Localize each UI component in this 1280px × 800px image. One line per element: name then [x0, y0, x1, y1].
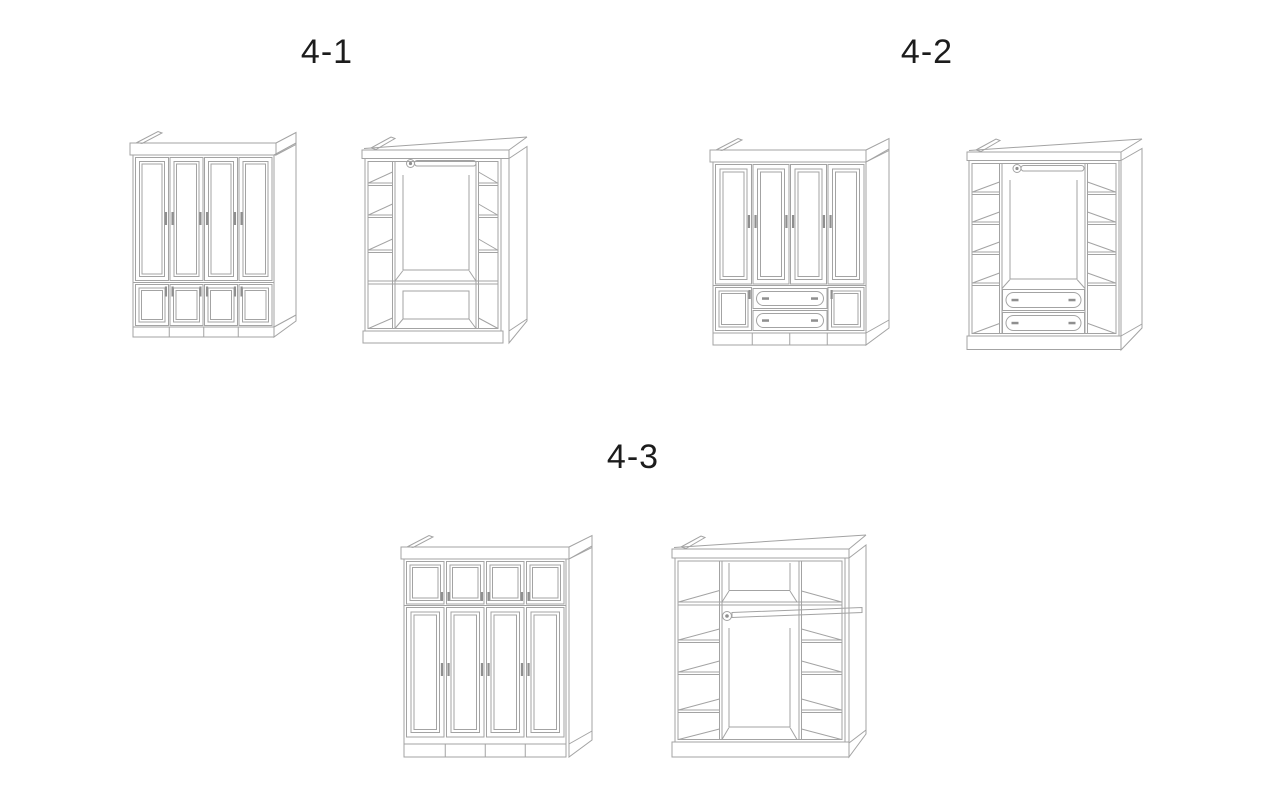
wardrobe-4-2-open-interior-drawing	[967, 139, 1142, 350]
wardrobe-4-3-closed-exterior-drawing	[401, 536, 592, 758]
wardrobe-4-1-open-interior-drawing	[362, 137, 527, 343]
wardrobe-4-1-closed-exterior-drawing	[130, 132, 296, 338]
wardrobe-4-3-open-interior-drawing	[672, 535, 866, 757]
wardrobe-diagrams-canvas	[0, 0, 1280, 800]
wardrobe-4-2-closed-exterior-drawing	[710, 139, 889, 346]
